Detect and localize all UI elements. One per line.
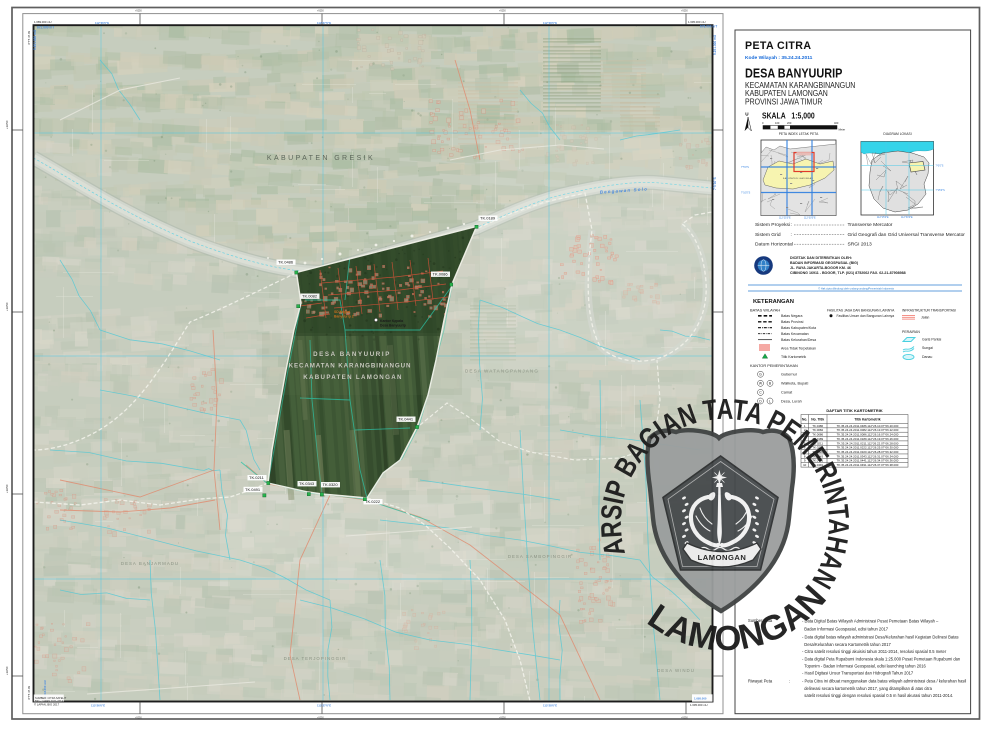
svg-text:LAMONGAN: LAMONGAN xyxy=(698,553,747,562)
